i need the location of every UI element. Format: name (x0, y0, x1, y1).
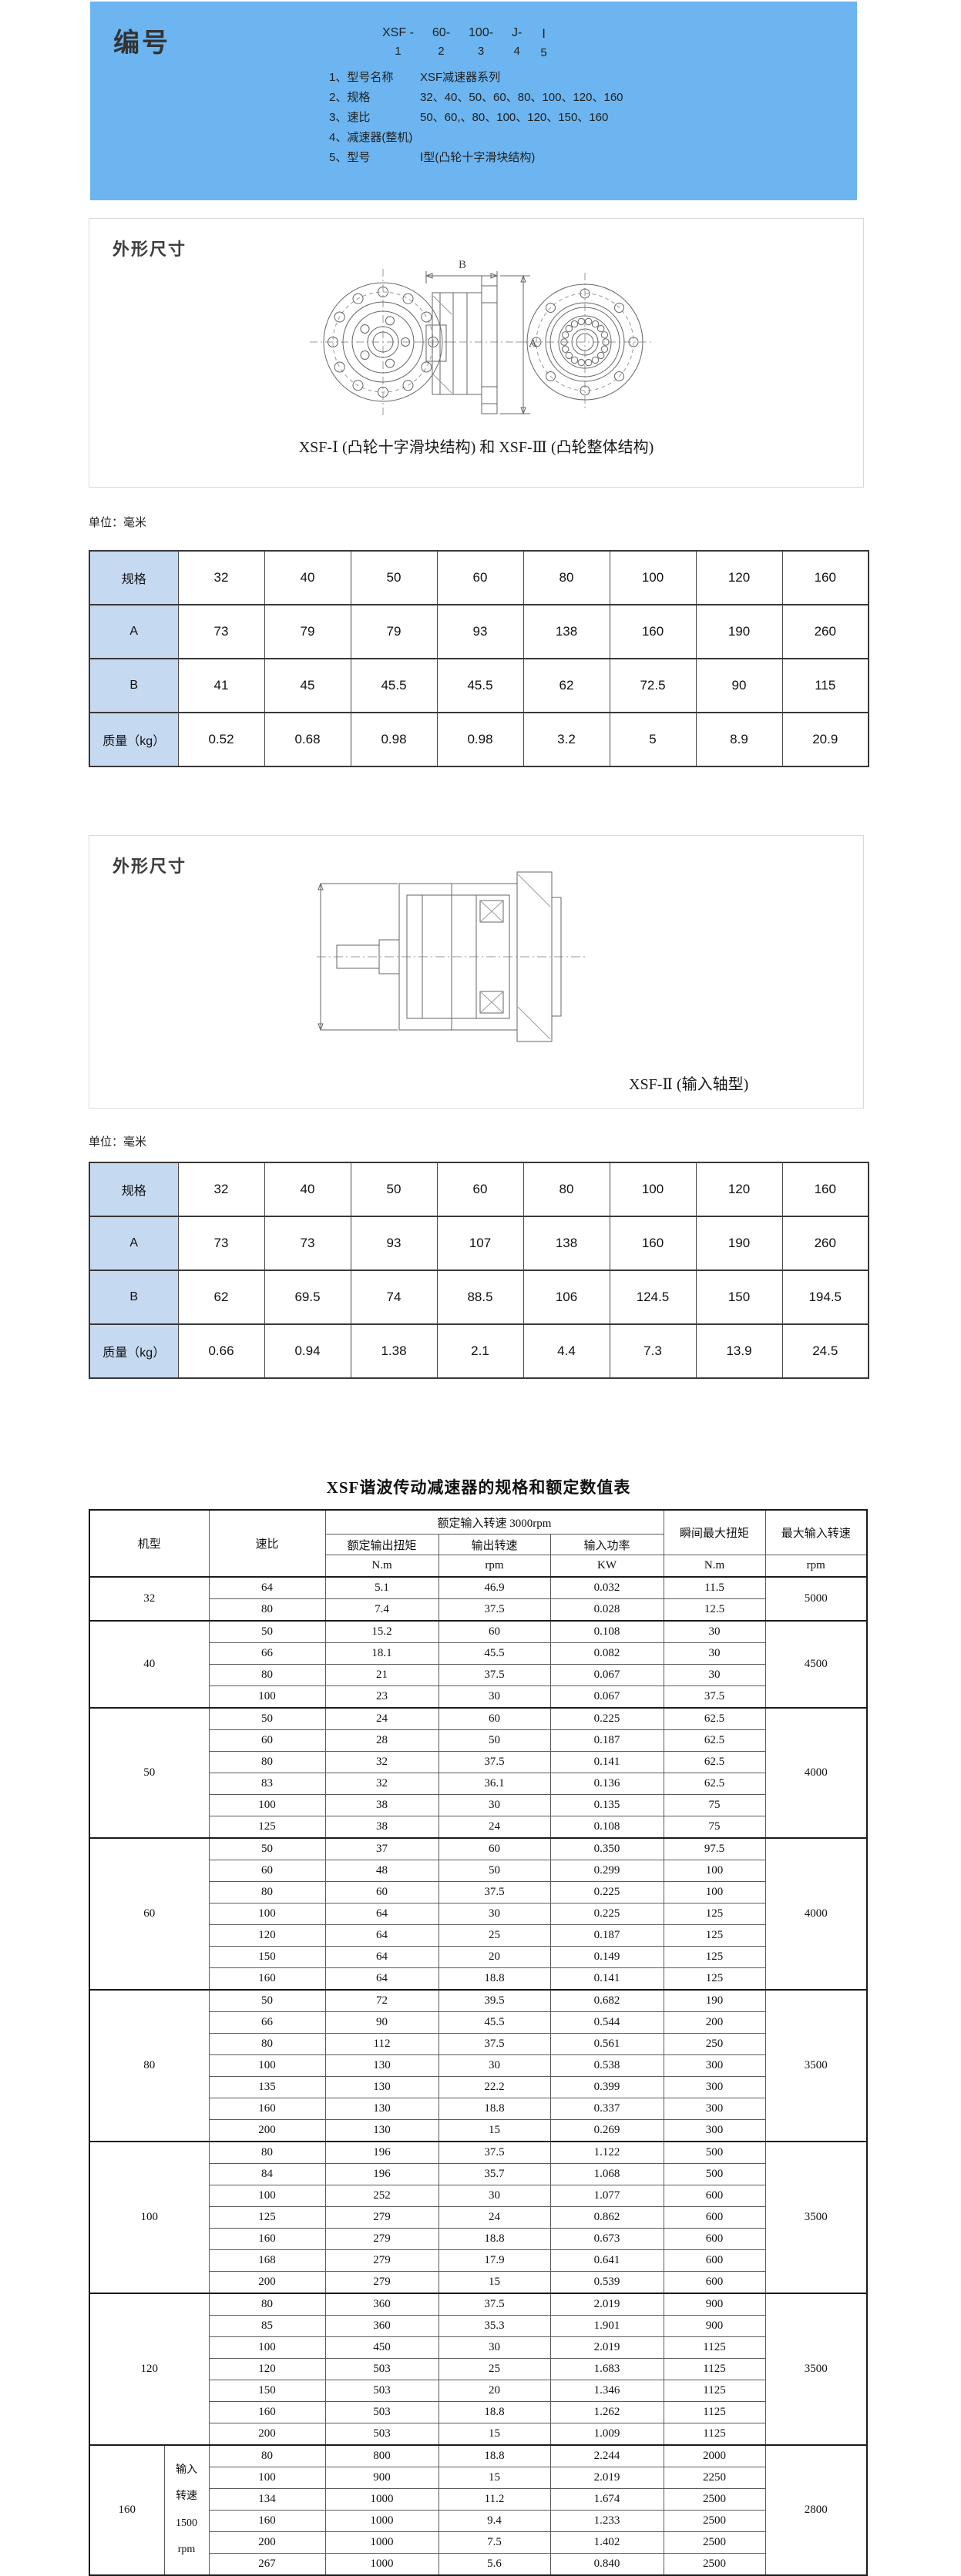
value-cell: 503 (325, 2423, 438, 2446)
table-row: 规格3240506080100120160 (89, 1162, 869, 1216)
value-cell: 1125 (664, 2402, 765, 2423)
ratio-cell: 100 (209, 2467, 325, 2489)
max-speed-cell: 3500 (765, 1990, 867, 2142)
ratio-cell: 50 (209, 1708, 325, 1730)
value-cell: 0.141 (550, 1968, 664, 1991)
model-cell: 100 (89, 2142, 209, 2293)
numbering-item: 1、型号名称XSF减速器系列 (329, 68, 623, 88)
ratio-cell: 50 (209, 1621, 325, 1643)
ratio-cell: 50 (209, 1990, 325, 2012)
spec-cell: 0.98 (437, 713, 523, 766)
value-cell: 60 (438, 1708, 550, 1730)
value-cell: 0.187 (550, 1730, 664, 1752)
spec-row-header: A (89, 605, 178, 659)
value-cell: 35.7 (438, 2164, 550, 2185)
spec-cell: 88.5 (437, 1270, 523, 1324)
value-cell: 1000 (325, 2532, 438, 2554)
numbering-item-label: 5、型号 (329, 148, 420, 168)
value-cell: 23 (325, 1686, 438, 1709)
unit-peak-torque: N.m (664, 1555, 765, 1578)
rating-table-body: 32645.146.90.03211.55000807.437.50.02812… (89, 1577, 867, 2575)
value-cell: 28 (325, 1730, 438, 1752)
table-row: B414545.545.56272.590115 (89, 659, 869, 713)
value-cell: 252 (325, 2185, 438, 2207)
model-cell: 32 (89, 1577, 209, 1621)
value-cell: 37.5 (438, 2034, 550, 2055)
ratio-cell: 135 (209, 2077, 325, 2098)
value-cell: 0.561 (550, 2034, 664, 2055)
value-cell: 0.187 (550, 1925, 664, 1947)
value-cell: 1.122 (550, 2142, 664, 2164)
code-segment-text: Ⅰ (542, 26, 546, 42)
spec-row-header: A (89, 1216, 178, 1270)
code-segment: Ⅰ5 (540, 26, 546, 59)
value-cell: 1.402 (550, 2532, 664, 2554)
spec-row-header: B (89, 1270, 178, 1324)
spec-cell: 80 (523, 1162, 610, 1216)
unit-input-power: KW (550, 1555, 664, 1578)
spec-cell: 45.5 (351, 659, 437, 713)
value-cell: 2.019 (550, 2293, 664, 2316)
value-cell: 37.5 (438, 1752, 550, 1773)
spec-cell: 106 (523, 1270, 610, 1324)
numbering-header: 编号 XSF -160-2100-3J-4Ⅰ5 1、型号名称XSF减速器系列2、… (90, 2, 857, 200)
ratio-cell: 100 (209, 2185, 325, 2207)
value-cell: 15 (438, 2423, 550, 2446)
col-header-model: 机型 (89, 1510, 209, 1577)
spec-cell: 40 (264, 551, 351, 605)
value-cell: 0.067 (550, 1686, 664, 1709)
value-cell: 7.5 (438, 2532, 550, 2554)
outline-section-2: 外形尺寸 (89, 835, 864, 1109)
value-cell: 1125 (664, 2380, 765, 2402)
code-segment: J-4 (512, 26, 522, 59)
table-row: A737393107138160190260 (89, 1216, 869, 1270)
spec-cell: 45.5 (437, 659, 523, 713)
unit-output-speed: rpm (438, 1555, 550, 1578)
value-cell: 30 (664, 1643, 765, 1665)
spec-cell: 72.5 (610, 659, 696, 713)
value-cell: 1125 (664, 2337, 765, 2359)
value-cell: 900 (325, 2467, 438, 2489)
value-cell: 64 (325, 1903, 438, 1925)
value-cell: 11.5 (664, 1577, 765, 1599)
spec-cell: 69.5 (264, 1270, 351, 1324)
value-cell: 30 (664, 1665, 765, 1686)
value-cell: 0.082 (550, 1643, 664, 1665)
value-cell: 1125 (664, 2423, 765, 2446)
table-row: 规格3240506080100120160 (89, 551, 869, 605)
outline-caption-2: XSF-Ⅱ (输入轴型) (629, 1072, 748, 1094)
value-cell: 500 (664, 2142, 765, 2164)
spec-cell: 160 (610, 1216, 696, 1270)
rating-table-title: XSF谐波传动减速器的规格和额定数值表 (89, 1475, 869, 1498)
value-cell: 21 (325, 1665, 438, 1686)
table-row: B6269.57488.5106124.5150194.5 (89, 1270, 869, 1324)
value-cell: 25 (438, 1925, 550, 1947)
spec-cell: 62 (178, 1270, 264, 1324)
spec-cell: 5 (610, 713, 696, 766)
spec-cell: 2.1 (437, 1324, 523, 1378)
value-cell: 0.299 (550, 1860, 664, 1882)
value-cell: 200 (664, 2012, 765, 2034)
value-cell: 900 (664, 2316, 765, 2337)
value-cell: 18.8 (438, 2229, 550, 2250)
value-cell: 62.5 (664, 1730, 765, 1752)
value-cell: 279 (325, 2229, 438, 2250)
value-cell: 30 (438, 1903, 550, 1925)
spec-cell: 4.4 (523, 1324, 610, 1378)
spec-cell: 190 (696, 605, 782, 659)
ratio-cell: 64 (209, 1577, 325, 1599)
numbering-item-label: 2、规格 (329, 88, 420, 108)
value-cell: 45.5 (438, 1643, 550, 1665)
spec-cell: 74 (351, 1270, 437, 1324)
value-cell: 45.5 (438, 2012, 550, 2034)
numbering-item: 5、型号Ⅰ型(凸轮十字滑块结构) (329, 148, 623, 168)
value-cell: 17.9 (438, 2250, 550, 2272)
spec-cell: 73 (178, 1216, 264, 1270)
ratio-cell: 125 (209, 2207, 325, 2229)
value-cell: 1.262 (550, 2402, 664, 2423)
value-cell: 90 (325, 2012, 438, 2034)
spec-cell: 32 (178, 1162, 264, 1216)
value-cell: 100 (664, 1860, 765, 1882)
value-cell: 2.019 (550, 2337, 664, 2359)
rating-table: 机型 速比 额定输入转速 3000rpm 瞬间最大扭矩 最大输入转速 额定输出扭… (89, 1509, 868, 2576)
value-cell: 0.544 (550, 2012, 664, 2034)
value-cell: 0.682 (550, 1990, 664, 2012)
value-cell: 18.8 (438, 2402, 550, 2423)
table-row: 质量（kg）0.660.941.382.14.47.313.924.5 (89, 1324, 869, 1378)
value-cell: 30 (438, 1795, 550, 1816)
value-cell: 0.225 (550, 1903, 664, 1925)
value-cell: 24 (438, 2207, 550, 2229)
value-cell: 300 (664, 2077, 765, 2098)
value-cell: 130 (325, 2055, 438, 2077)
value-cell: 0.399 (550, 2077, 664, 2098)
value-cell: 0.840 (550, 2554, 664, 2576)
numbering-item-value: Ⅰ型(凸轮十字滑块结构) (420, 148, 535, 168)
value-cell: 1.068 (550, 2164, 664, 2185)
model-cell: 80 (89, 1990, 209, 2142)
value-cell: 18.8 (438, 1968, 550, 1991)
value-cell: 2500 (664, 2532, 765, 2554)
value-cell: 503 (325, 2402, 438, 2423)
value-cell: 2500 (664, 2511, 765, 2532)
value-cell: 1000 (325, 2554, 438, 2576)
spec-cell: 45 (264, 659, 351, 713)
value-cell: 2500 (664, 2489, 765, 2511)
spec-cell: 13.9 (696, 1324, 782, 1378)
ratio-cell: 160 (209, 2098, 325, 2120)
ratio-cell: 160 (209, 2402, 325, 2423)
ratio-cell: 200 (209, 2272, 325, 2294)
spec-cell: 138 (523, 605, 610, 659)
value-cell: 62.5 (664, 1773, 765, 1795)
col-header-input-power: 输入功率 (550, 1535, 664, 1555)
model-cell: 40 (89, 1621, 209, 1708)
spec-cell: 93 (351, 1216, 437, 1270)
value-cell: 2000 (664, 2445, 765, 2467)
value-cell: 0.225 (550, 1882, 664, 1903)
col-header-output-speed: 输出转速 (438, 1535, 550, 1555)
dim-label-b: B (459, 259, 466, 271)
value-cell: 7.4 (325, 1599, 438, 1622)
model-cell: 160 (89, 2445, 164, 2575)
value-cell: 900 (664, 2293, 765, 2316)
unit-max-input-speed: rpm (765, 1555, 867, 1578)
value-cell: 300 (664, 2098, 765, 2120)
spec-cell: 100 (610, 551, 696, 605)
value-cell: 0.136 (550, 1773, 664, 1795)
spec-cell: 190 (696, 1216, 782, 1270)
spec-cell: 62 (523, 659, 610, 713)
value-cell: 30 (438, 1686, 550, 1709)
spec-cell: 260 (782, 605, 869, 659)
input-shaft-section-view (317, 872, 586, 1041)
value-cell: 196 (325, 2142, 438, 2164)
value-cell: 37.5 (438, 1665, 550, 1686)
value-cell: 130 (325, 2098, 438, 2120)
ratio-cell: 80 (209, 1599, 325, 1622)
spec-cell: 107 (437, 1216, 523, 1270)
spec-cell: 100 (610, 1162, 696, 1216)
value-cell: 1.901 (550, 2316, 664, 2337)
value-cell: 600 (664, 2229, 765, 2250)
value-cell: 250 (664, 2034, 765, 2055)
ratio-cell: 120 (209, 1925, 325, 1947)
numbering-title: 编号 (113, 22, 170, 59)
value-cell: 300 (664, 2120, 765, 2142)
numbering-item: 2、规格32、40、50、60、80、100、120、160 (329, 88, 623, 108)
value-cell: 46.9 (438, 1577, 550, 1599)
value-cell: 60 (438, 1621, 550, 1643)
value-cell: 125 (664, 1947, 765, 1968)
ratio-cell: 80 (209, 2445, 325, 2467)
value-cell: 97.5 (664, 1838, 765, 1860)
outline-caption-1: XSF-Ⅰ (凸轮十字滑块结构) 和 XSF-Ⅲ (凸轮整体结构) (89, 434, 863, 457)
value-cell: 30 (438, 2055, 550, 2077)
spec-cell: 124.5 (610, 1270, 696, 1324)
input-speed-note-cell: 输入转速1500rpm (164, 2445, 209, 2575)
page-content: 编号 XSF -160-2100-3J-4Ⅰ5 1、型号名称XSF减速器系列2、… (89, 2, 869, 2576)
col-header-rated-torque: 额定输出扭矩 (325, 1535, 438, 1555)
ratio-cell: 60 (209, 1860, 325, 1882)
value-cell: 72 (325, 1990, 438, 2012)
spec-cell: 50 (351, 551, 437, 605)
table-row: 605037600.35097.54000 (89, 1838, 867, 1860)
spec-cell: 8.9 (696, 713, 782, 766)
table-row: 160输入转速1500rpm8080018.82.24420002800 (89, 2445, 867, 2467)
spec-cell: 0.94 (264, 1324, 351, 1378)
spec-cell: 160 (782, 1162, 869, 1216)
value-cell: 18.8 (438, 2445, 550, 2467)
table-row: 质量（kg）0.520.680.980.983.258.920.9 (89, 713, 869, 766)
ratio-cell: 200 (209, 2532, 325, 2554)
code-segment-text: J- (512, 26, 522, 40)
value-cell: 1000 (325, 2489, 438, 2511)
code-segment-number: 5 (540, 46, 546, 59)
spec-cell: 1.38 (351, 1324, 437, 1378)
spec-row-header: 规格 (89, 1162, 178, 1216)
value-cell: 100 (664, 1882, 765, 1903)
ratio-cell: 66 (209, 2012, 325, 2034)
code-segment-number: 4 (514, 45, 520, 58)
value-cell: 24 (438, 1816, 550, 1839)
rear-flange-view (516, 273, 654, 411)
value-cell: 0.269 (550, 2120, 664, 2142)
table-row: 505024600.22562.54000 (89, 1708, 867, 1730)
numbering-item-label: 3、速比 (329, 108, 420, 128)
unit-rated-torque: N.m (325, 1555, 438, 1578)
value-cell: 18.8 (438, 2098, 550, 2120)
numbering-item-label: 4、减速器(整机) (329, 128, 420, 148)
value-cell: 64 (325, 1947, 438, 1968)
value-cell: 60 (438, 1838, 550, 1860)
spec-cell: 24.5 (782, 1324, 869, 1378)
value-cell: 1.009 (550, 2423, 664, 2446)
value-cell: 2500 (664, 2554, 765, 2576)
value-cell: 800 (325, 2445, 438, 2467)
ratio-cell: 50 (209, 1838, 325, 1860)
max-speed-cell: 4000 (765, 1838, 867, 1990)
value-cell: 503 (325, 2380, 438, 2402)
value-cell: 37 (325, 1838, 438, 1860)
spec-cell: 0.68 (264, 713, 351, 766)
table-row: 1208036037.52.0199003500 (89, 2293, 867, 2316)
model-cell: 50 (89, 1708, 209, 1838)
spec-cell: 50 (351, 1162, 437, 1216)
numbering-item-label: 1、型号名称 (329, 68, 420, 88)
value-cell: 5.6 (438, 2554, 550, 2576)
ratio-cell: 80 (209, 1882, 325, 1903)
value-cell: 75 (664, 1816, 765, 1839)
ratio-cell: 66 (209, 1643, 325, 1665)
code-segment-number: 2 (438, 45, 444, 58)
value-cell: 60 (325, 1882, 438, 1903)
col-header-max-input-speed: 最大输入转速 (765, 1510, 867, 1555)
value-cell: 9.4 (438, 2511, 550, 2532)
value-cell: 600 (664, 2250, 765, 2272)
ratio-cell: 134 (209, 2489, 325, 2511)
value-cell: 190 (664, 1990, 765, 2012)
value-cell: 30 (438, 2337, 550, 2359)
value-cell: 0.108 (550, 1621, 664, 1643)
spec-cell: 260 (782, 1216, 869, 1270)
col-header-peak-torque: 瞬间最大扭矩 (664, 1510, 765, 1555)
model-code-block: XSF -160-2100-3J-4Ⅰ5 (382, 26, 566, 59)
value-cell: 50 (438, 1730, 550, 1752)
spec-cell: 60 (437, 1162, 523, 1216)
value-cell: 112 (325, 2034, 438, 2055)
spec-cell: 41 (178, 659, 264, 713)
spec-cell: 0.98 (351, 713, 437, 766)
value-cell: 600 (664, 2272, 765, 2294)
value-cell: 20 (438, 2380, 550, 2402)
value-cell: 0.108 (550, 1816, 664, 1839)
value-cell: 38 (325, 1795, 438, 1816)
value-cell: 37.5 (664, 1686, 765, 1709)
value-cell: 18.1 (325, 1643, 438, 1665)
col-header-rated-group: 额定输入转速 3000rpm (325, 1510, 664, 1535)
spec-cell: 0.66 (178, 1324, 264, 1378)
value-cell: 0.149 (550, 1947, 664, 1968)
value-cell: 12.5 (664, 1599, 765, 1622)
spec-cell: 138 (523, 1216, 610, 1270)
value-cell: 0.032 (550, 1577, 664, 1599)
ratio-cell: 100 (209, 1686, 325, 1709)
value-cell: 48 (325, 1860, 438, 1882)
value-cell: 500 (664, 2164, 765, 2185)
model-code-row: XSF -160-2100-3J-4Ⅰ5 (382, 26, 566, 59)
value-cell: 0.337 (550, 2098, 664, 2120)
value-cell: 5.1 (325, 1577, 438, 1599)
table-row: 80507239.50.6821903500 (89, 1990, 867, 2012)
code-segment-number: 3 (478, 45, 484, 58)
value-cell: 0.350 (550, 1838, 664, 1860)
value-cell: 25 (438, 2359, 550, 2380)
spec-cell: 3.2 (523, 713, 610, 766)
col-header-ratio: 速比 (209, 1510, 325, 1577)
spec-cell: 32 (178, 551, 264, 605)
numbering-item: 3、速比50、60,、80、100、120、150、160 (329, 108, 623, 128)
value-cell: 75 (664, 1795, 765, 1816)
ratio-cell: 125 (209, 1816, 325, 1839)
spec-cell: 73 (178, 605, 264, 659)
spec-cell: 0.52 (178, 713, 264, 766)
table-row: 1008019637.51.1225003500 (89, 2142, 867, 2164)
value-cell: 0.538 (550, 2055, 664, 2077)
value-cell: 360 (325, 2316, 438, 2337)
value-cell: 0.141 (550, 1752, 664, 1773)
spec-cell: 120 (696, 551, 782, 605)
ratio-cell: 100 (209, 2337, 325, 2359)
value-cell: 196 (325, 2164, 438, 2185)
value-cell: 279 (325, 2272, 438, 2294)
value-cell: 300 (664, 2055, 765, 2077)
value-cell: 37.5 (438, 2142, 550, 2164)
value-cell: 279 (325, 2250, 438, 2272)
unit-note-2: 单位：毫米 (89, 1133, 869, 1149)
ratio-cell: 160 (209, 1968, 325, 1991)
value-cell: 0.028 (550, 1599, 664, 1622)
value-cell: 62.5 (664, 1752, 765, 1773)
value-cell: 38 (325, 1816, 438, 1839)
value-cell: 64 (325, 1925, 438, 1947)
value-cell: 39.5 (438, 1990, 550, 2012)
numbering-item-value: 50、60,、80、100、120、150、160 (420, 108, 608, 128)
value-cell: 2250 (664, 2467, 765, 2489)
value-cell: 0.673 (550, 2229, 664, 2250)
max-speed-cell: 3500 (765, 2142, 867, 2293)
value-cell: 62.5 (664, 1708, 765, 1730)
ratio-cell: 60 (209, 1730, 325, 1752)
value-cell: 279 (325, 2207, 438, 2229)
value-cell: 15 (438, 2467, 550, 2489)
code-segment-text: XSF - (382, 26, 414, 40)
value-cell: 360 (325, 2293, 438, 2316)
ratio-cell: 80 (209, 2142, 325, 2164)
table-row: A73797993138160190260 (89, 605, 869, 659)
spec-cell: 79 (351, 605, 437, 659)
ratio-cell: 84 (209, 2164, 325, 2185)
value-cell: 15 (438, 2272, 550, 2294)
value-cell: 0.135 (550, 1795, 664, 1816)
table-row: 405015.2600.108304500 (89, 1621, 867, 1643)
ratio-cell: 100 (209, 2055, 325, 2077)
value-cell: 0.539 (550, 2272, 664, 2294)
